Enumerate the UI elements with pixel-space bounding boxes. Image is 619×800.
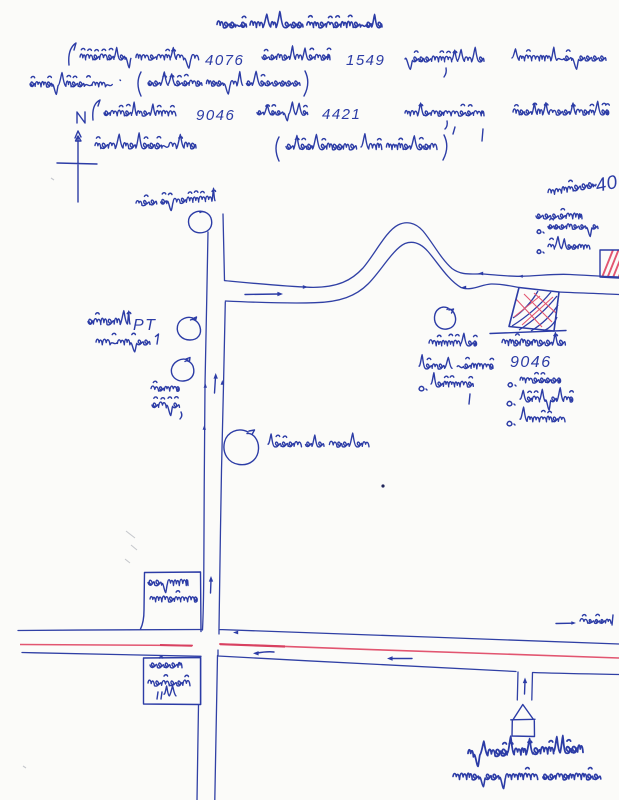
svg-text:4421: 4421 (322, 106, 361, 123)
svg-text:9046: 9046 (196, 107, 235, 124)
svg-text:PT: PT (133, 317, 156, 334)
svg-text:40: 40 (594, 172, 619, 197)
svg-text:9046: 9046 (510, 354, 552, 371)
svg-text:4076: 4076 (205, 52, 244, 69)
svg-text:1549: 1549 (346, 52, 385, 69)
